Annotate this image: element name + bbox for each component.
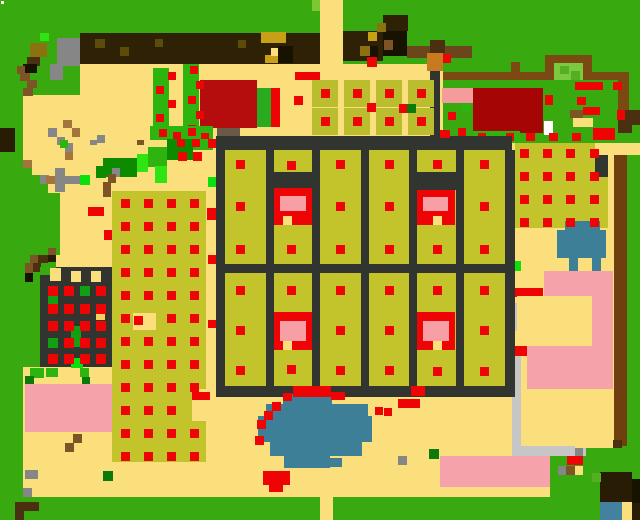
brown-dot-tl-d — [23, 88, 33, 96]
farm-plot-dot — [385, 245, 394, 254]
dotted-field-left — [112, 191, 206, 462]
gold-dot-3 — [368, 32, 377, 41]
rock-large — [57, 38, 80, 66]
berry-field-right-dot — [543, 218, 552, 227]
brown-item-br — [566, 466, 575, 475]
pond-edge-red-5 — [255, 436, 264, 445]
brown-speck-1 — [137, 140, 144, 145]
dotted-field-dot — [144, 291, 153, 300]
red-row-tr-2 — [549, 133, 558, 141]
black-cluster-tl — [23, 64, 37, 73]
pink-room-col — [592, 296, 613, 346]
dark-soil-dot — [80, 338, 90, 348]
dotted-field-dot — [121, 291, 130, 300]
red-right-pond — [398, 399, 420, 408]
darkgreen-dot-bl — [103, 471, 113, 481]
darkbrown-topright — [430, 40, 445, 53]
coop-1-roof — [280, 196, 306, 211]
red-row-tr-1 — [526, 133, 535, 141]
brown-dot-left — [23, 160, 32, 168]
farm-plot-dot — [433, 367, 442, 376]
dotted-field-dot — [121, 360, 130, 369]
red-between-plots-1 — [367, 103, 376, 112]
farm-plot-dot — [236, 286, 245, 295]
berry-field-right-dot — [543, 149, 552, 158]
dotted-field-dot — [167, 337, 176, 346]
house-red — [473, 88, 543, 133]
dark-building-br — [600, 472, 632, 503]
seedplot-dot — [353, 89, 362, 98]
trunk-2 — [103, 182, 111, 190]
vine2-berry-4 — [196, 111, 204, 119]
tan-room-2 — [521, 389, 613, 446]
dark-soil-dot — [80, 286, 90, 296]
dotted-field-dot — [144, 245, 153, 254]
soil-notch-2 — [71, 271, 81, 282]
olive-dot-band-1 — [95, 39, 105, 48]
rock-large-2 — [50, 64, 63, 80]
farm-plot-dot — [336, 286, 345, 295]
red-dot-house-2 — [458, 128, 466, 136]
red-item-tr-2 — [613, 82, 622, 90]
green-check-br — [592, 473, 601, 482]
gray-dot-bl-1 — [25, 470, 38, 479]
berry-field-right-dot — [543, 172, 552, 181]
dotted-field-dot — [121, 199, 130, 208]
rock-chain-6 — [65, 152, 73, 160]
pond-edge-red-2 — [272, 402, 281, 411]
tan-strip-br — [575, 440, 613, 448]
dark-soil-dot — [64, 304, 74, 314]
trunk-diag-3 — [48, 255, 56, 262]
dotted-field-dot — [121, 383, 130, 392]
blue-block-br — [600, 502, 622, 520]
brown-dot-tl-c — [27, 80, 37, 88]
darkgreen-between-plots — [407, 104, 416, 113]
seedplot-dot — [321, 117, 330, 126]
farm-plot-dot — [336, 160, 345, 169]
grass-left-step3 — [23, 183, 48, 193]
coop-1-door — [283, 216, 292, 225]
farm-plot-a2 — [225, 273, 266, 386]
coop-4-door — [433, 341, 442, 350]
farm-divider-2 — [312, 150, 320, 386]
dark-soil-dot — [80, 354, 90, 364]
tan-column-br — [622, 502, 632, 520]
dotted-field-dot — [144, 406, 153, 415]
pen-strip-e1 — [417, 172, 456, 190]
tan-bottom-gap — [320, 497, 333, 520]
dotted-field-dot — [144, 268, 153, 277]
darkgold-dot-2 — [360, 46, 370, 56]
berry-field-right-dot — [590, 195, 599, 204]
coop-3-roof — [280, 321, 306, 341]
dotted-field-dot — [190, 429, 199, 438]
gold-patch-1 — [261, 32, 286, 43]
berry-field-right-dot — [566, 149, 575, 158]
seedplot-dot — [385, 89, 394, 98]
dotted-field-dot — [167, 222, 176, 231]
olive-dot-band-2 — [120, 47, 129, 56]
red-bar-tr — [593, 128, 615, 140]
tan-patch-tr — [573, 118, 593, 127]
strip-red-1 — [207, 208, 216, 220]
tan-room-1 — [517, 296, 592, 346]
dotted-field-dot — [144, 360, 153, 369]
berry-field-right-dot — [566, 218, 575, 227]
farm-plot-dot — [385, 366, 394, 375]
farm-plot-dot — [336, 326, 345, 335]
bushrow-left-berry-1 — [159, 129, 167, 137]
dark-soil-dot — [64, 286, 74, 296]
dotted-field-dot — [167, 406, 176, 415]
dark-soil-dot — [64, 321, 74, 331]
soil-notch-3 — [91, 271, 101, 282]
red-on-border-top — [440, 130, 450, 138]
red-item-br — [567, 456, 583, 465]
dotted-field-dot — [121, 452, 130, 461]
rock-chain-7 — [97, 135, 105, 143]
dotted-field-dot — [144, 199, 153, 208]
red-row-tr-3 — [572, 133, 581, 141]
seedplot-dot — [385, 117, 394, 126]
farm-plot-dot — [385, 286, 394, 295]
dotted-field-dot — [121, 337, 130, 346]
red-bar-center — [295, 72, 320, 80]
deepbrown-block-2 — [625, 110, 640, 125]
dark-soil-dot — [96, 354, 106, 364]
dark-building-br-shadow — [632, 479, 640, 503]
trunk-diag-2 — [38, 255, 48, 263]
animal-leg-2 — [592, 258, 601, 271]
pink-patch-house — [442, 88, 473, 103]
soil-notch-1 — [50, 268, 61, 281]
vine1-berry-1 — [168, 72, 176, 80]
garden-patch-in2 — [571, 71, 580, 80]
berry-field-right-dot — [520, 149, 529, 158]
dotted-field-dot — [121, 222, 130, 231]
darkgreen-dot-br — [429, 449, 439, 459]
farm-divider-4 — [409, 150, 417, 386]
farm-plot-a1 — [225, 150, 266, 264]
vine2-berry-3 — [188, 96, 196, 104]
dotted-field-dot — [167, 199, 176, 208]
brown-right-column — [614, 155, 627, 448]
game-map[interactable] — [0, 0, 640, 520]
dark-soil-dot — [64, 338, 74, 348]
brown-dot-bl-1 — [73, 434, 82, 443]
dark-soil-dot — [80, 304, 90, 314]
red-item-band-1 — [367, 57, 377, 67]
foliage-berry-5 — [193, 152, 202, 161]
vine1-berry-2 — [156, 86, 164, 94]
dark-soil-dot — [64, 354, 74, 364]
brown-corner-1 — [15, 502, 39, 511]
farm-plot-dot — [336, 202, 345, 211]
bushrow-left-berry-3 — [188, 128, 196, 136]
pond-4 — [270, 442, 362, 456]
dotted-field-dot — [121, 429, 130, 438]
pink-room-b — [527, 346, 613, 389]
rock-plus-h — [64, 176, 80, 184]
dark-soil-dot — [48, 354, 58, 364]
red-item-tr-4 — [583, 107, 600, 115]
pond-edge-red-3 — [264, 411, 273, 420]
farm-divider-3 — [361, 150, 369, 386]
red-dot-house-1 — [448, 112, 456, 120]
seedplot-dot — [417, 117, 426, 126]
red-item-tr-0 — [617, 110, 625, 120]
animal-leg-1 — [569, 258, 578, 271]
pink-floor-bl — [25, 384, 112, 432]
grass-left-step1 — [23, 167, 32, 175]
fence-stub — [511, 62, 520, 72]
farm-border-top — [216, 136, 512, 150]
farm-plot-dot — [480, 286, 489, 295]
seedplot-dot — [321, 89, 330, 98]
gray-speck-1 — [90, 140, 97, 145]
dotted-field-dot — [167, 245, 176, 254]
farm-border-right — [505, 150, 515, 397]
pond-5 — [284, 456, 330, 468]
pond-6 — [326, 458, 342, 467]
dotted-field-dot — [121, 406, 130, 415]
dotted-field-dot — [121, 245, 130, 254]
dotted-field-dot — [190, 337, 199, 346]
tan-item-br — [575, 466, 583, 475]
dark-soil-dot — [96, 321, 106, 331]
lightgreen-stripe-top — [312, 0, 320, 11]
seedplot-dot — [417, 89, 426, 98]
black-blob-band — [278, 46, 293, 63]
dotted-field-dot — [190, 452, 199, 461]
dotted-field-dot — [167, 360, 176, 369]
farm-plot-dot — [287, 286, 296, 295]
red-bar-left — [88, 207, 104, 216]
farm-plot-dot — [480, 326, 489, 335]
dark-soil-dot — [48, 321, 58, 331]
red-stripe-barn — [271, 88, 280, 127]
berry-field-right-dot — [520, 195, 529, 204]
green-stripe-barn — [257, 88, 271, 127]
berry-field-right-dot — [566, 172, 575, 181]
dotted-field-dot — [167, 268, 176, 277]
brown-plus — [46, 176, 55, 184]
farm-divider-5 — [456, 150, 464, 386]
sprout-row-2 — [46, 368, 58, 377]
dotted-field-dot — [190, 199, 199, 208]
berry-field-right-dot — [566, 195, 575, 204]
red-blob-bottom-2 — [269, 484, 283, 492]
farm-plot-dot — [480, 367, 489, 376]
gold-cluster-tl — [30, 43, 47, 57]
coop-2-door — [433, 216, 442, 225]
coop-4-roof — [423, 321, 449, 341]
field-notch-mid-red — [134, 316, 143, 325]
foliage-mid-1 — [148, 147, 167, 167]
farm-plot-dot — [433, 286, 442, 295]
rock-chain-1 — [63, 120, 72, 128]
farm-plot-dot — [336, 366, 345, 375]
red-blob-bottom — [263, 471, 290, 485]
berry-field-right-dot — [520, 218, 529, 227]
pond-edge-red-1 — [283, 393, 292, 401]
foliage-berry-4 — [178, 152, 187, 161]
dotted-field-dot — [190, 383, 199, 392]
dotted-field-dot — [190, 314, 199, 323]
rock-chain-3 — [72, 128, 80, 137]
gray-dot-pond — [398, 456, 407, 465]
red-item-band-2 — [443, 54, 451, 63]
sprout-row-3 — [80, 368, 89, 377]
brown-speck-band — [384, 40, 393, 50]
seedplot-dot — [353, 117, 362, 126]
farm-plot-dot — [480, 160, 489, 169]
dotted-field-dot — [144, 429, 153, 438]
tan-path-top — [320, 0, 343, 70]
dark-soil-dot — [80, 321, 90, 331]
berry-field-right-dot — [590, 149, 599, 158]
farm-plot-dot — [385, 202, 394, 211]
red-pair-2 — [384, 408, 392, 416]
sprout-dark-1 — [25, 376, 34, 384]
dotted-field-dot — [167, 291, 176, 300]
farm-plot-dot — [287, 365, 296, 374]
field-notch-right-red — [192, 392, 210, 400]
farm-border-bottom — [216, 386, 512, 397]
garden-patch-in1 — [560, 66, 569, 74]
foliage-bright-2 — [155, 166, 167, 183]
dark-soil-dot — [48, 304, 58, 314]
dotted-field-dot — [167, 314, 176, 323]
dotted-field-dot — [167, 383, 176, 392]
dotted-field-dot — [144, 222, 153, 231]
farm-plot-dot — [236, 326, 245, 335]
dark-soil-dot — [48, 338, 58, 348]
farm-plot-dot — [336, 245, 345, 254]
red-item-tr-1 — [575, 82, 603, 90]
dotted-field-dot — [190, 222, 199, 231]
dotted-field-dot — [190, 245, 199, 254]
foliage-berry-1 — [177, 139, 185, 147]
farm-plot-dot — [433, 245, 442, 254]
vine2-berry-2 — [196, 81, 204, 89]
dark-br-edge — [632, 503, 640, 520]
fence-horizontal-1 — [443, 72, 545, 80]
berry-field-right-dot — [590, 172, 599, 181]
darkgold-dot-1 — [377, 23, 386, 32]
vine2-berry-1 — [190, 66, 198, 74]
dark-soil-dot — [96, 304, 106, 314]
red-pair-1 — [375, 407, 383, 415]
grass-left-step2 — [23, 175, 40, 183]
green-dot-left — [60, 140, 68, 148]
dark-soil-dot — [96, 286, 106, 296]
farm-plot-dot — [236, 245, 245, 254]
coop-3-door — [283, 341, 292, 350]
lightgreen-dot-tl — [40, 33, 49, 41]
foliage-bright-1 — [137, 154, 148, 172]
olive-dot-band-4 — [238, 40, 246, 48]
dotted-field-dot — [144, 383, 153, 392]
coop-2-roof — [423, 197, 448, 211]
farm-plot-dot — [236, 366, 245, 375]
red-bar-pond-2 — [331, 392, 345, 400]
farm-plot-dot — [287, 245, 296, 254]
vine1-berry-3 — [168, 100, 176, 108]
dotted-field-dot — [190, 268, 199, 277]
tan-strip-right — [595, 143, 640, 155]
pond-edge-red-4 — [257, 420, 266, 429]
vine1-berry-4 — [156, 114, 164, 122]
deepbrown-br — [613, 440, 622, 448]
animal-body — [557, 230, 606, 258]
bright-dot-left — [80, 175, 90, 185]
brown-dot-bl-2 — [65, 443, 74, 452]
red-dot-center — [294, 96, 303, 105]
dark-soil-dot — [96, 338, 106, 348]
red-item-tr-5 — [545, 95, 553, 105]
white-speck — [1, 1, 4, 4]
dotted-field-dot — [144, 337, 153, 346]
farm-plot-dot — [480, 202, 489, 211]
dotted-field-dot — [190, 360, 199, 369]
fence-vertical-2 — [583, 55, 592, 80]
dark-soil-dot — [48, 286, 58, 296]
red-bar-pond-top — [293, 386, 331, 397]
foliage-dark-2 — [96, 166, 106, 178]
farm-plot-dot — [433, 160, 442, 169]
barn-red — [200, 80, 257, 128]
farm-plot-dot — [287, 161, 296, 170]
farm-plot-dot — [480, 245, 489, 254]
foliage-berry-2 — [192, 139, 200, 147]
soil-band-upper — [383, 15, 408, 31]
pond-3 — [258, 416, 372, 442]
farm-plot-dot — [385, 160, 394, 169]
farm-plot-dot — [236, 202, 245, 211]
orange-block — [427, 53, 443, 71]
berry-field-right-dot — [590, 218, 599, 227]
farm-plot-dot — [385, 326, 394, 335]
brown-corner-2 — [15, 511, 24, 520]
black-rect-left — [0, 128, 15, 152]
red-item-tr-3 — [577, 97, 586, 105]
dotted-field-dot — [190, 291, 199, 300]
pink-room-c — [440, 456, 550, 487]
berry-field-right-dot — [520, 172, 529, 181]
pink-room-a — [544, 271, 613, 296]
berry-field-right-dot — [543, 195, 552, 204]
farm-divider-1 — [266, 150, 274, 386]
brown-item-tr — [570, 110, 583, 118]
trunk-diag-4 — [25, 263, 33, 273]
olive-dot-band-3 — [155, 39, 163, 47]
dotted-field-dot — [121, 314, 130, 323]
gray-item-br-2 — [558, 466, 566, 475]
dotted-field-dot — [144, 452, 153, 461]
rock-chain-2 — [48, 128, 57, 137]
gray-dot-bl-2 — [23, 488, 32, 497]
farm-plot-dot — [236, 160, 245, 169]
strip-red-3 — [208, 320, 216, 328]
trunk-diag-6 — [25, 273, 33, 282]
dotted-field-dot — [167, 429, 176, 438]
dotted-field-dot — [167, 452, 176, 461]
farm-border-left — [216, 150, 225, 397]
trunk-3 — [103, 190, 111, 197]
green-dot-house — [462, 104, 470, 112]
